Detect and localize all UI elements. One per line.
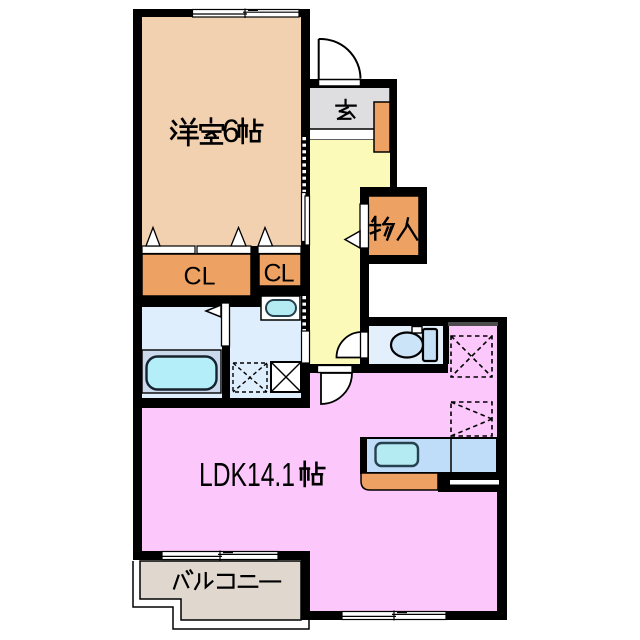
svg-text:6: 6 — [222, 113, 240, 149]
svg-text:LDK14.1: LDK14.1 — [199, 456, 295, 493]
svg-text:CL: CL — [184, 263, 216, 291]
svg-text:CL: CL — [264, 260, 295, 288]
